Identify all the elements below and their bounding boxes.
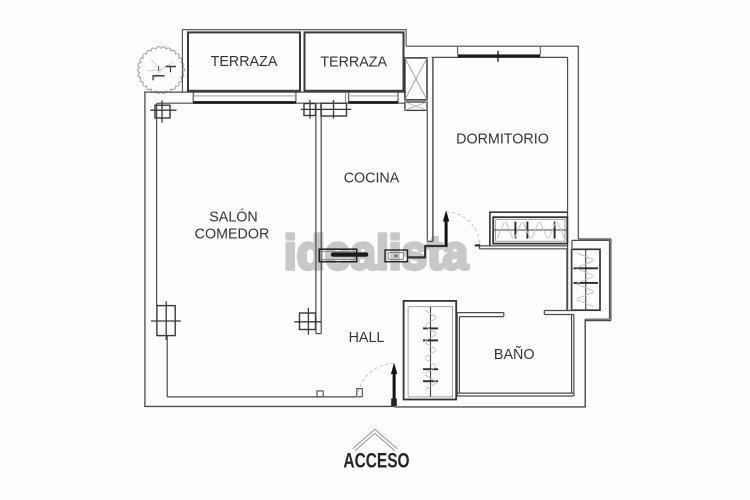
svg-text:ACCESO: ACCESO (343, 448, 409, 472)
svg-text:COMEDOR: COMEDOR (195, 226, 270, 242)
svg-text:SALÓN: SALÓN (209, 208, 257, 225)
svg-text:idealista: idealista (284, 225, 469, 279)
svg-text:TERRAZA: TERRAZA (211, 54, 278, 70)
svg-text:COCINA: COCINA (344, 170, 400, 186)
svg-text:DORMITORIO: DORMITORIO (456, 131, 549, 147)
svg-text:TERRAZA: TERRAZA (320, 55, 387, 71)
svg-text:BAÑO: BAÑO (494, 346, 535, 363)
svg-text:HALL: HALL (349, 330, 385, 346)
